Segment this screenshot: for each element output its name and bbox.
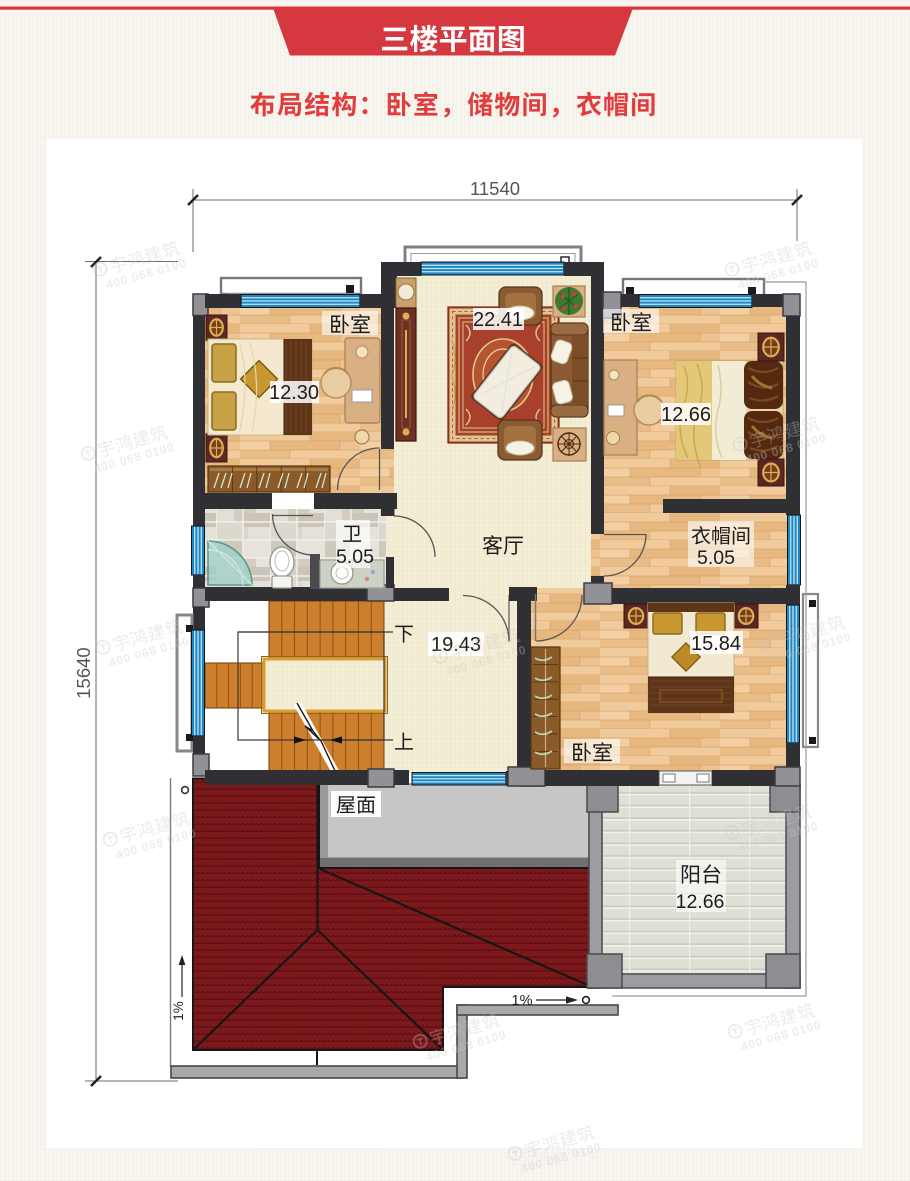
svg-text:22.41: 22.41 — [473, 309, 523, 331]
svg-text:1%: 1% — [171, 1001, 186, 1021]
svg-text:12.66: 12.66 — [676, 891, 725, 913]
svg-text:1%: 1% — [512, 993, 533, 1009]
svg-text:12.30: 12.30 — [269, 382, 319, 404]
svg-text:11540: 11540 — [470, 178, 520, 199]
svg-text:12.66: 12.66 — [661, 404, 711, 426]
svg-text:5.05: 5.05 — [697, 547, 735, 569]
svg-text:15640: 15640 — [73, 647, 94, 698]
svg-text:15.84: 15.84 — [691, 633, 741, 655]
svg-text:5.05: 5.05 — [336, 546, 374, 568]
